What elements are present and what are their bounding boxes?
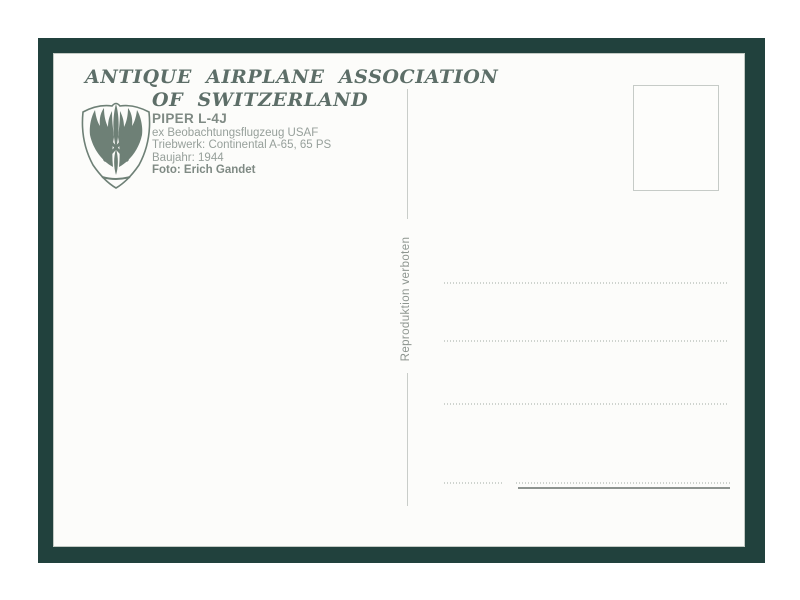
reproduction-notice: Reproduktion verboten — [400, 229, 414, 369]
aircraft-description: ex Beobachtungsflugzeug USAF — [152, 127, 331, 139]
address-line-1 — [444, 282, 729, 284]
scan-background: { "postcard": { "header": { "title_line1… — [0, 0, 800, 600]
address-line-3 — [444, 403, 729, 405]
build-year: Baujahr: 1944 — [152, 152, 331, 164]
address-line-4 — [516, 482, 730, 484]
winged-propeller-shield-icon — [76, 180, 156, 197]
association-title-line1: ANTIQUE AIRPLANE ASSOCIATION — [85, 67, 498, 87]
signature-line — [518, 487, 730, 489]
stamp-box — [633, 85, 719, 191]
center-divider-upper — [407, 89, 408, 219]
center-divider-lower — [407, 373, 408, 506]
aircraft-details: PIPER L-4J ex Beobachtungsflugzeug USAF … — [152, 112, 331, 176]
engine-spec: Triebwerk: Continental A-65, 65 PS — [152, 139, 331, 151]
photo-credit: Foto: Erich Gandet — [152, 164, 331, 176]
postcard-frame: ANTIQUE AIRPLANE ASSOCIATION OF SWITZERL… — [38, 38, 765, 563]
association-title-line2: OF SWITZERLAND — [152, 90, 368, 110]
aircraft-model: PIPER L-4J — [152, 112, 331, 126]
postcode-line — [444, 482, 503, 484]
postcard: ANTIQUE AIRPLANE ASSOCIATION OF SWITZERL… — [53, 53, 745, 547]
association-logo — [76, 97, 156, 194]
address-line-2 — [444, 340, 729, 342]
